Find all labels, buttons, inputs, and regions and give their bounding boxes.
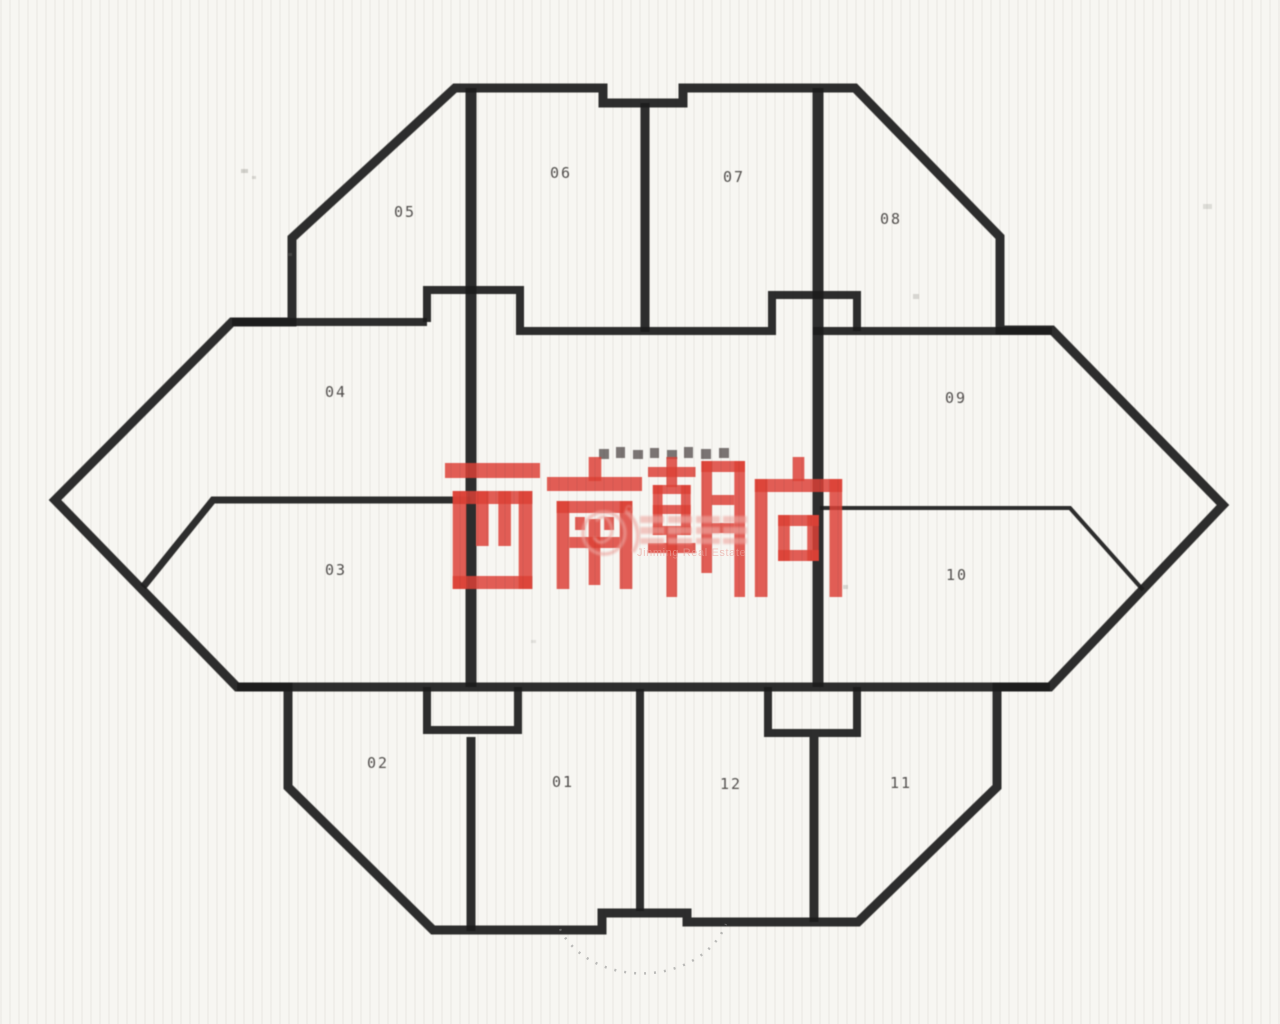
xiang-char bbox=[755, 457, 842, 597]
nan-char bbox=[547, 457, 642, 589]
unit-label-08: 08 bbox=[880, 210, 902, 228]
core-label-text bbox=[599, 447, 729, 459]
scan-artifacts bbox=[241, 169, 1212, 643]
divider-09-10 bbox=[820, 508, 1143, 590]
unit-label-06: 06 bbox=[550, 164, 572, 182]
walls bbox=[55, 88, 1223, 931]
unit-label-07: 07 bbox=[723, 168, 745, 186]
floorplan-svg: 01 02 03 04 05 06 07 08 09 10 11 12 bbox=[0, 0, 1280, 1024]
watermark-brand-en: Jinming Real Estate bbox=[637, 547, 746, 559]
unit-label-12: 12 bbox=[720, 775, 742, 793]
entry-notch-left bbox=[427, 687, 518, 730]
unit-label-01: 01 bbox=[552, 773, 574, 791]
divider-04-03 bbox=[143, 500, 471, 587]
xi-char bbox=[445, 463, 540, 589]
unit-label-02: 02 bbox=[367, 754, 389, 772]
entry-notch-right bbox=[768, 687, 857, 733]
unit-label-09: 09 bbox=[945, 389, 967, 407]
unit-label-11: 11 bbox=[890, 774, 912, 792]
unit-label-03: 03 bbox=[325, 561, 347, 579]
unit-label-04: 04 bbox=[325, 383, 347, 401]
floorplan-scan: 西南朝向 锦明地产 电梯大堂及公共区 bbox=[0, 0, 1280, 1024]
unit-label-05: 05 bbox=[394, 203, 416, 221]
unit-label-10: 10 bbox=[946, 566, 968, 584]
watermark-brand-cn bbox=[640, 516, 747, 544]
